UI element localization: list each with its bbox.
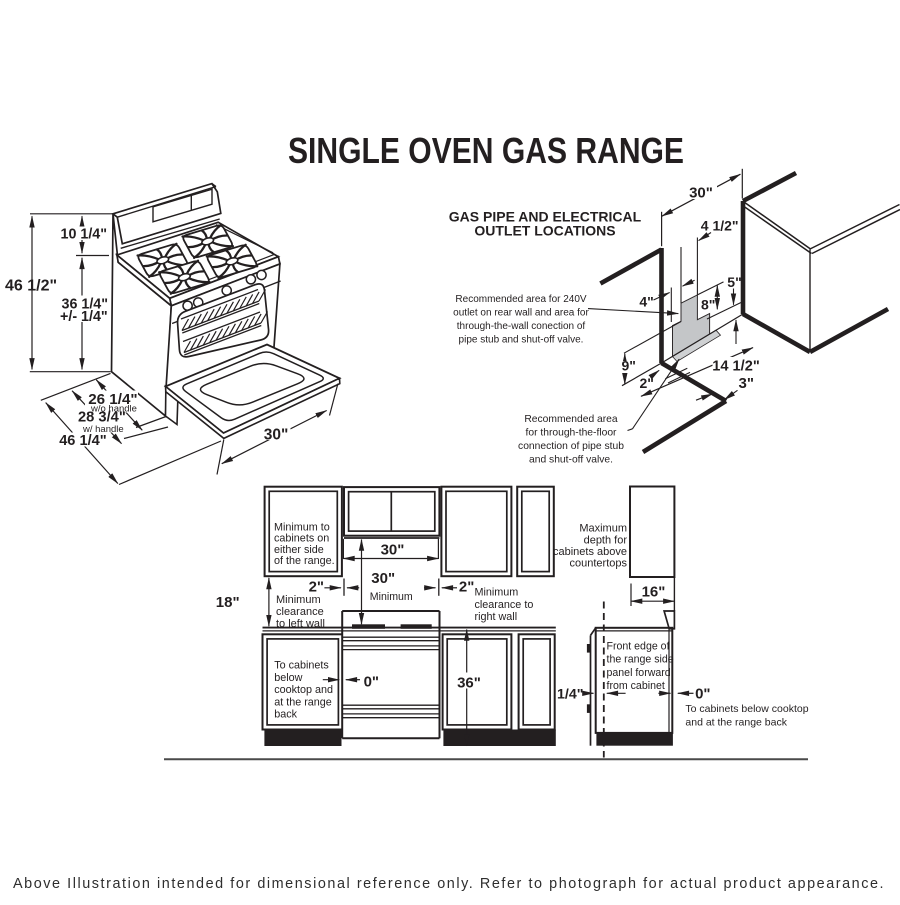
svg-text:the range side: the range side <box>607 654 674 666</box>
svg-text:30": 30" <box>264 427 289 444</box>
svg-text:9": 9" <box>622 357 636 373</box>
svg-text:1/4": 1/4" <box>557 686 583 702</box>
svg-text:3": 3" <box>739 375 754 392</box>
svg-text:To cabinets below cooktop: To cabinets below cooktop <box>685 703 808 715</box>
svg-text:either side: either side <box>274 544 324 556</box>
svg-text:of the range.: of the range. <box>274 555 335 567</box>
svg-text:cabinets on: cabinets on <box>274 533 329 545</box>
svg-text:4": 4" <box>639 294 653 310</box>
svg-text:Recommended area for 240V: Recommended area for 240V <box>455 294 587 305</box>
svg-text:panel forward: panel forward <box>607 667 671 679</box>
svg-text:back: back <box>274 709 297 721</box>
svg-text:clearance: clearance <box>276 606 324 618</box>
svg-text:countertops: countertops <box>570 558 628 570</box>
svg-text:+/- 1/4": +/- 1/4" <box>60 309 108 325</box>
svg-text:To cabinets: To cabinets <box>274 660 329 672</box>
svg-text:30": 30" <box>371 570 395 587</box>
svg-text:Above Illustration intended fo: Above Illustration intended for dimensio… <box>13 876 885 892</box>
svg-text:36": 36" <box>457 675 481 692</box>
svg-text:Minimum: Minimum <box>475 587 519 599</box>
svg-text:at the range: at the range <box>274 696 332 708</box>
svg-text:for through-the-floor: for through-the-floor <box>525 428 617 439</box>
svg-text:30": 30" <box>689 185 713 202</box>
svg-text:10 1/4": 10 1/4" <box>61 227 108 243</box>
svg-text:below: below <box>274 672 302 684</box>
svg-text:46 1/4": 46 1/4" <box>59 433 106 449</box>
svg-text:30": 30" <box>381 542 405 559</box>
svg-text:14 1/2": 14 1/2" <box>712 359 760 375</box>
svg-text:5": 5" <box>727 274 741 290</box>
svg-text:2": 2" <box>640 375 654 391</box>
svg-text:16": 16" <box>642 584 666 601</box>
svg-text:to left wall: to left wall <box>276 618 325 630</box>
svg-text:46 1/2": 46 1/2" <box>5 278 57 295</box>
svg-text:Minimum: Minimum <box>276 594 321 606</box>
svg-text:cabinets above: cabinets above <box>553 546 627 558</box>
svg-text:0": 0" <box>695 686 710 703</box>
svg-text:through-the-wall conection of: through-the-wall conection of <box>457 321 586 332</box>
svg-text:8": 8" <box>701 297 715 313</box>
svg-text:0": 0" <box>364 673 379 690</box>
svg-text:SINGLE OVEN GAS RANGE: SINGLE OVEN GAS RANGE <box>288 130 684 171</box>
svg-text:4 1/2": 4 1/2" <box>701 217 739 233</box>
svg-text:from cabinet: from cabinet <box>607 680 665 692</box>
svg-text:connection of pipe stub: connection of pipe stub <box>518 441 624 452</box>
svg-text:clearance to: clearance to <box>475 599 534 611</box>
svg-text:right wall: right wall <box>475 611 518 623</box>
svg-text:outlet on rear wall and area f: outlet on rear wall and area for <box>453 308 589 319</box>
svg-text:Front edge of: Front edge of <box>607 641 670 653</box>
svg-text:18": 18" <box>216 594 240 611</box>
svg-text:2": 2" <box>459 579 474 596</box>
svg-text:Recommended area: Recommended area <box>524 414 618 425</box>
svg-text:and at the range back: and at the range back <box>685 717 787 729</box>
svg-text:Minimum to: Minimum to <box>274 521 330 533</box>
svg-text:cooktop and: cooktop and <box>274 684 333 696</box>
svg-text:pipe stub and shut-off valve.: pipe stub and shut-off valve. <box>459 335 584 346</box>
svg-text:Minimum: Minimum <box>370 591 413 603</box>
svg-text:depth for: depth for <box>584 534 628 546</box>
svg-text:and shut-off valve.: and shut-off valve. <box>529 455 613 466</box>
svg-text:Maximum: Maximum <box>579 523 627 535</box>
svg-text:OUTLET LOCATIONS: OUTLET LOCATIONS <box>474 222 615 238</box>
